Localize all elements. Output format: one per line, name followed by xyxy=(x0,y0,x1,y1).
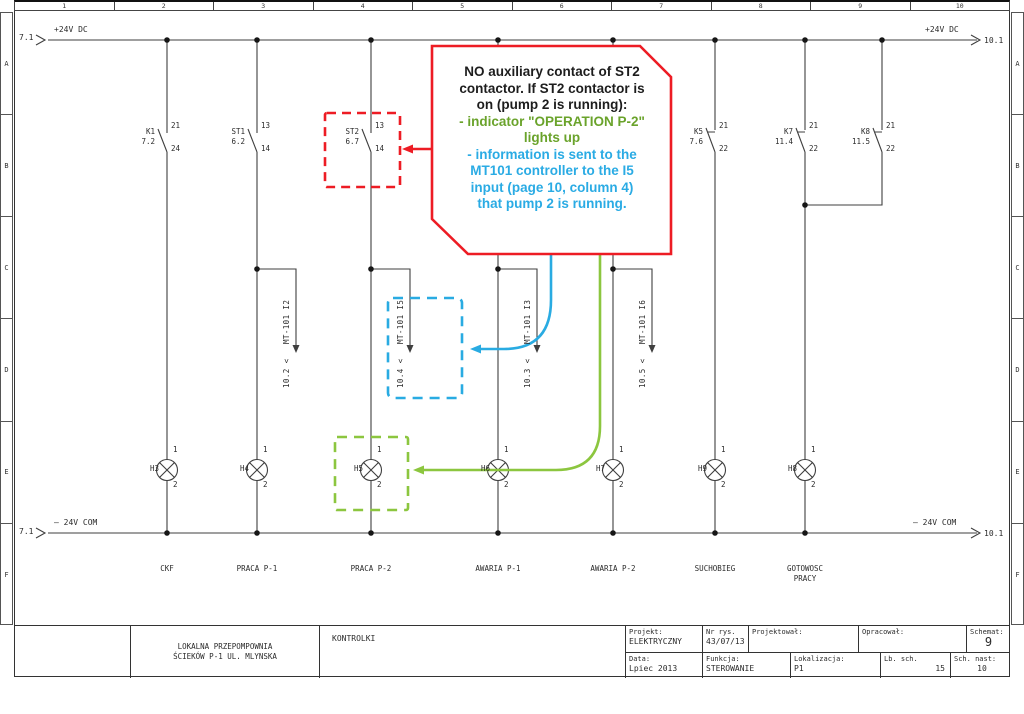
lamp-name: H8 xyxy=(771,464,797,473)
company-line1: LOKALNA PRZEPOMPOWNIA xyxy=(178,642,273,652)
function-caption: CKF xyxy=(122,564,212,574)
callout-line: MT101 controller to the I5 xyxy=(436,163,668,180)
terminal-number: 1 xyxy=(811,445,816,454)
terminal-number: 21 xyxy=(809,121,818,130)
terminal-number: 1 xyxy=(504,445,509,454)
terminal-number: 1 xyxy=(619,445,624,454)
field-value: Lpiec 2013 xyxy=(626,663,702,673)
terminal-number: 21 xyxy=(886,121,895,130)
lamp-name: H9 xyxy=(681,464,707,473)
row-letter: E xyxy=(1,422,12,524)
nr-rys-cell: Nr rys. 43/07/13 xyxy=(702,626,748,652)
field-value: P1 xyxy=(791,663,880,673)
branch-dest-ref: 10.3 < xyxy=(523,356,535,388)
field-label: Funkcja: xyxy=(703,653,790,663)
contact-st1: ST1 6.2 13 14 xyxy=(211,118,303,158)
rail-ref: 10.1 xyxy=(984,529,1003,538)
contact-name: K7 xyxy=(759,127,793,136)
branch-label: MT-101 I6 xyxy=(638,284,650,344)
row-letter: D xyxy=(1,319,12,421)
contact-st2: ST2 6.7 13 14 xyxy=(325,118,417,158)
lamp-h8: H8 1 2 xyxy=(771,442,839,492)
terminal-number: 14 xyxy=(375,144,384,153)
lb-sch-cell: Lb. sch. 15 xyxy=(880,652,950,678)
column-number: 3 xyxy=(214,2,314,10)
contact-ref: 7.2 xyxy=(121,137,155,146)
field-value: 10 xyxy=(951,663,1010,673)
rail-ref: 7.1 xyxy=(19,33,33,42)
terminal-number: 1 xyxy=(173,445,178,454)
row-letter: F xyxy=(1012,524,1023,626)
column-ruler: 1 2 3 4 5 6 7 8 9 10 xyxy=(14,0,1010,11)
field-label: Sch. nast: xyxy=(951,653,1010,663)
callout-line: contactor. If ST2 contactor is xyxy=(436,81,668,98)
terminal-number: 14 xyxy=(261,144,270,153)
opracowal-cell: Opracował: xyxy=(858,626,966,652)
contact-k8: K8 11.5 21 22 xyxy=(836,118,928,158)
function-caption: AWARIA P-1 xyxy=(453,564,543,574)
callout-line: that pump 2 is running. xyxy=(436,196,668,213)
funkcja-cell: Funkcja: STEROWANIE xyxy=(702,652,790,678)
contact-ref: 11.4 xyxy=(759,137,793,146)
callout-annotation: NO auxiliary contact of ST2 contactor. I… xyxy=(436,64,668,213)
rail-ref: 10.1 xyxy=(984,36,1003,45)
column-number: 9 xyxy=(811,2,911,10)
terminal-number: 22 xyxy=(719,144,728,153)
contact-ref: 6.7 xyxy=(325,137,359,146)
schematic-page: 1 2 3 4 5 6 7 8 9 10 A B C D E F A B C D… xyxy=(0,0,1024,714)
field-label: Lokalizacja: xyxy=(791,653,880,663)
terminal-number: 13 xyxy=(375,121,384,130)
row-letter: A xyxy=(1012,13,1023,115)
row-letter: E xyxy=(1012,422,1023,524)
data-cell: Data: Lpiec 2013 xyxy=(625,652,702,678)
row-ruler-left: A B C D E F xyxy=(0,12,13,625)
field-label: Projektował: xyxy=(749,626,858,636)
terminal-number: 2 xyxy=(721,480,726,489)
drawing-title: KONTROLKI xyxy=(332,634,375,643)
projektowal-cell: Projektował: xyxy=(748,626,858,652)
terminal-number: 21 xyxy=(719,121,728,130)
column-number: 5 xyxy=(413,2,513,10)
function-caption: PRACA P-1 xyxy=(212,564,302,574)
contact-name: ST1 xyxy=(211,127,245,136)
contact-ref: 11.5 xyxy=(836,137,870,146)
callout-line: - information is sent to the xyxy=(436,147,668,164)
field-value: STEROWANIE xyxy=(703,663,790,673)
callout-line: lights up xyxy=(436,130,668,147)
callout-line: - indicator "OPERATION P-2" xyxy=(436,114,668,131)
contact-k5: K5 7.6 21 22 xyxy=(669,118,761,158)
field-label: Data: xyxy=(626,653,702,663)
terminal-number: 2 xyxy=(377,480,382,489)
column-number: 1 xyxy=(15,2,115,10)
projekt-cell: Projekt: ELEKTRYCZNY xyxy=(625,626,702,652)
row-letter: B xyxy=(1012,115,1023,217)
title-block: LOKALNA PRZEPOMPOWNIA ŚCIEKÓW P-1 UL. ML… xyxy=(14,625,1010,677)
lamp-name: H4 xyxy=(223,464,249,473)
lokalizacja-cell: Lokalizacja: P1 xyxy=(790,652,880,678)
lamp-h6: H6 1 2 xyxy=(464,442,532,492)
contact-ref: 7.6 xyxy=(669,137,703,146)
branch-dest-ref: 10.2 < xyxy=(282,356,294,388)
row-letter: A xyxy=(1,13,12,115)
terminal-number: 24 xyxy=(171,144,180,153)
lamp-name: H5 xyxy=(337,464,363,473)
terminal-number: 13 xyxy=(261,121,270,130)
rail-ref: 7.1 xyxy=(19,527,33,536)
schemat-cell: Schemat: 9 xyxy=(966,626,1010,652)
column-number: 10 xyxy=(911,2,1010,10)
company-cell: LOKALNA PRZEPOMPOWNIA ŚCIEKÓW P-1 UL. ML… xyxy=(130,626,320,678)
contact-name: ST2 xyxy=(325,127,359,136)
terminal-number: 2 xyxy=(619,480,624,489)
rail-label: +24V DC xyxy=(54,25,88,34)
lamp-name: H7 xyxy=(579,464,605,473)
rail-label: – 24V COM xyxy=(913,518,956,527)
terminal-number: 2 xyxy=(263,480,268,489)
column-number: 7 xyxy=(612,2,712,10)
function-caption: SUCHOBIEG xyxy=(670,564,760,574)
callout-line: on (pump 2 is running): xyxy=(436,97,668,114)
field-value: 9 xyxy=(967,636,1010,648)
column-number: 6 xyxy=(513,2,613,10)
branch-dest-ref: 10.5 < xyxy=(638,356,650,388)
branch-label: MT-101 I2 xyxy=(282,284,294,344)
row-letter: B xyxy=(1,115,12,217)
row-ruler-right: A B C D E F xyxy=(1011,12,1024,625)
lamp-h7: H7 1 2 xyxy=(579,442,647,492)
field-label: Projekt: xyxy=(626,626,702,636)
column-number: 4 xyxy=(314,2,414,10)
contact-name: K8 xyxy=(836,127,870,136)
contact-k1: K1 7.2 21 24 xyxy=(121,118,213,158)
field-label: Lb. sch. xyxy=(881,653,950,663)
rail-label: – 24V COM xyxy=(54,518,97,527)
field-value: ELEKTRYCZNY xyxy=(626,636,702,646)
contact-name: K5 xyxy=(669,127,703,136)
terminal-number: 2 xyxy=(811,480,816,489)
terminal-number: 2 xyxy=(173,480,178,489)
row-letter: C xyxy=(1012,217,1023,319)
row-letter: F xyxy=(1,524,12,626)
column-number: 2 xyxy=(115,2,215,10)
sch-nast-cell: Sch. nast: 10 xyxy=(950,652,1010,678)
terminal-number: 22 xyxy=(809,144,818,153)
function-caption: AWARIA P-2 xyxy=(568,564,658,574)
contact-ref: 6.2 xyxy=(211,137,245,146)
drawing-title-cell: KONTROLKI xyxy=(320,626,625,678)
branch-label: MT-101 I3 xyxy=(523,284,535,344)
row-letter: D xyxy=(1012,319,1023,421)
callout-line: NO auxiliary contact of ST2 xyxy=(436,64,668,81)
callout-line: input (page 10, column 4) xyxy=(436,180,668,197)
company-line2: ŚCIEKÓW P-1 UL. MLYNSKA xyxy=(173,652,277,662)
terminal-number: 21 xyxy=(171,121,180,130)
function-caption: GOTOWOSC PRACY xyxy=(760,564,850,583)
branch-label: MT-101 I5 xyxy=(396,284,408,344)
contact-name: K1 xyxy=(121,127,155,136)
field-label: Nr rys. xyxy=(703,626,748,636)
function-caption: PRACA P-2 xyxy=(326,564,416,574)
lamp-name: H3 xyxy=(133,464,159,473)
lamp-h4: H4 1 2 xyxy=(223,442,291,492)
lamp-name: H6 xyxy=(464,464,490,473)
terminal-number: 1 xyxy=(263,445,268,454)
terminal-number: 1 xyxy=(721,445,726,454)
lamp-h3: H3 1 2 xyxy=(133,442,201,492)
lamp-h9: H9 1 2 xyxy=(681,442,749,492)
field-label: Opracował: xyxy=(859,626,966,636)
field-value: 43/07/13 xyxy=(703,636,748,646)
column-number: 8 xyxy=(712,2,812,10)
field-value: 15 xyxy=(881,663,950,673)
lamp-h5: H5 1 2 xyxy=(337,442,405,492)
terminal-number: 1 xyxy=(377,445,382,454)
terminal-number: 22 xyxy=(886,144,895,153)
rail-label: +24V DC xyxy=(925,25,959,34)
terminal-number: 2 xyxy=(504,480,509,489)
row-letter: C xyxy=(1,217,12,319)
branch-dest-ref: 10.4 < xyxy=(396,356,408,388)
